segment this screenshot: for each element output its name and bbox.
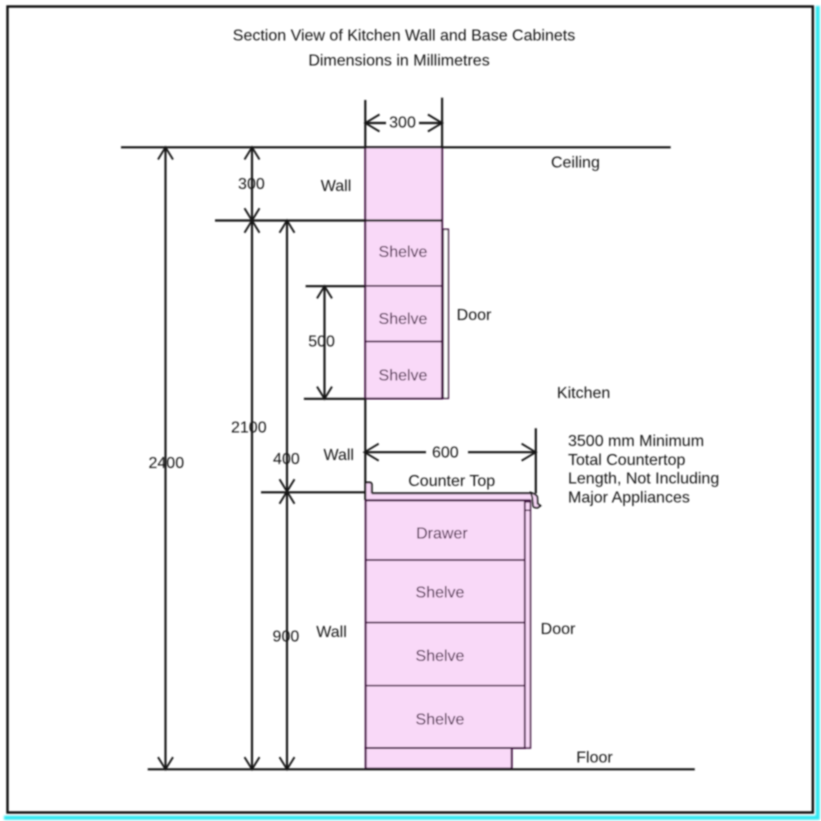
svg-text:Door: Door [541,621,576,638]
svg-text:Door: Door [457,307,492,324]
svg-text:Shelve: Shelve [379,311,428,328]
svg-text:Counter Top: Counter Top [408,473,495,490]
svg-text:Shelve: Shelve [379,368,428,385]
svg-text:Shelve: Shelve [416,585,465,602]
svg-text:Shelve: Shelve [379,244,428,261]
svg-text:Wall: Wall [316,624,347,641]
svg-text:Kitchen: Kitchen [557,385,610,402]
svg-text:Floor: Floor [576,750,613,767]
svg-text:2100: 2100 [231,420,267,437]
svg-text:2400: 2400 [149,455,185,472]
svg-text:3500 mm Minimum: 3500 mm Minimum [568,433,704,450]
svg-text:Wall: Wall [323,447,354,464]
svg-text:900: 900 [273,629,300,646]
svg-text:Section View of Kitchen Wall a: Section View of Kitchen Wall and Base Ca… [233,28,575,45]
svg-text:Shelve: Shelve [416,711,465,728]
svg-text:Major Appliances: Major Appliances [568,489,690,506]
svg-text:Wall: Wall [321,178,352,195]
svg-text:300: 300 [389,115,416,132]
svg-text:Dimensions in Millimetres: Dimensions in Millimetres [308,53,489,70]
svg-text:Ceiling: Ceiling [551,155,600,172]
svg-text:600: 600 [432,444,459,461]
svg-text:Shelve: Shelve [416,648,465,665]
svg-text:Drawer: Drawer [416,525,468,542]
svg-text:Length, Not Including: Length, Not Including [568,471,719,488]
svg-text:300: 300 [238,176,265,193]
svg-text:Total Countertop: Total Countertop [568,452,686,469]
svg-text:400: 400 [273,451,300,468]
svg-text:500: 500 [308,333,335,350]
